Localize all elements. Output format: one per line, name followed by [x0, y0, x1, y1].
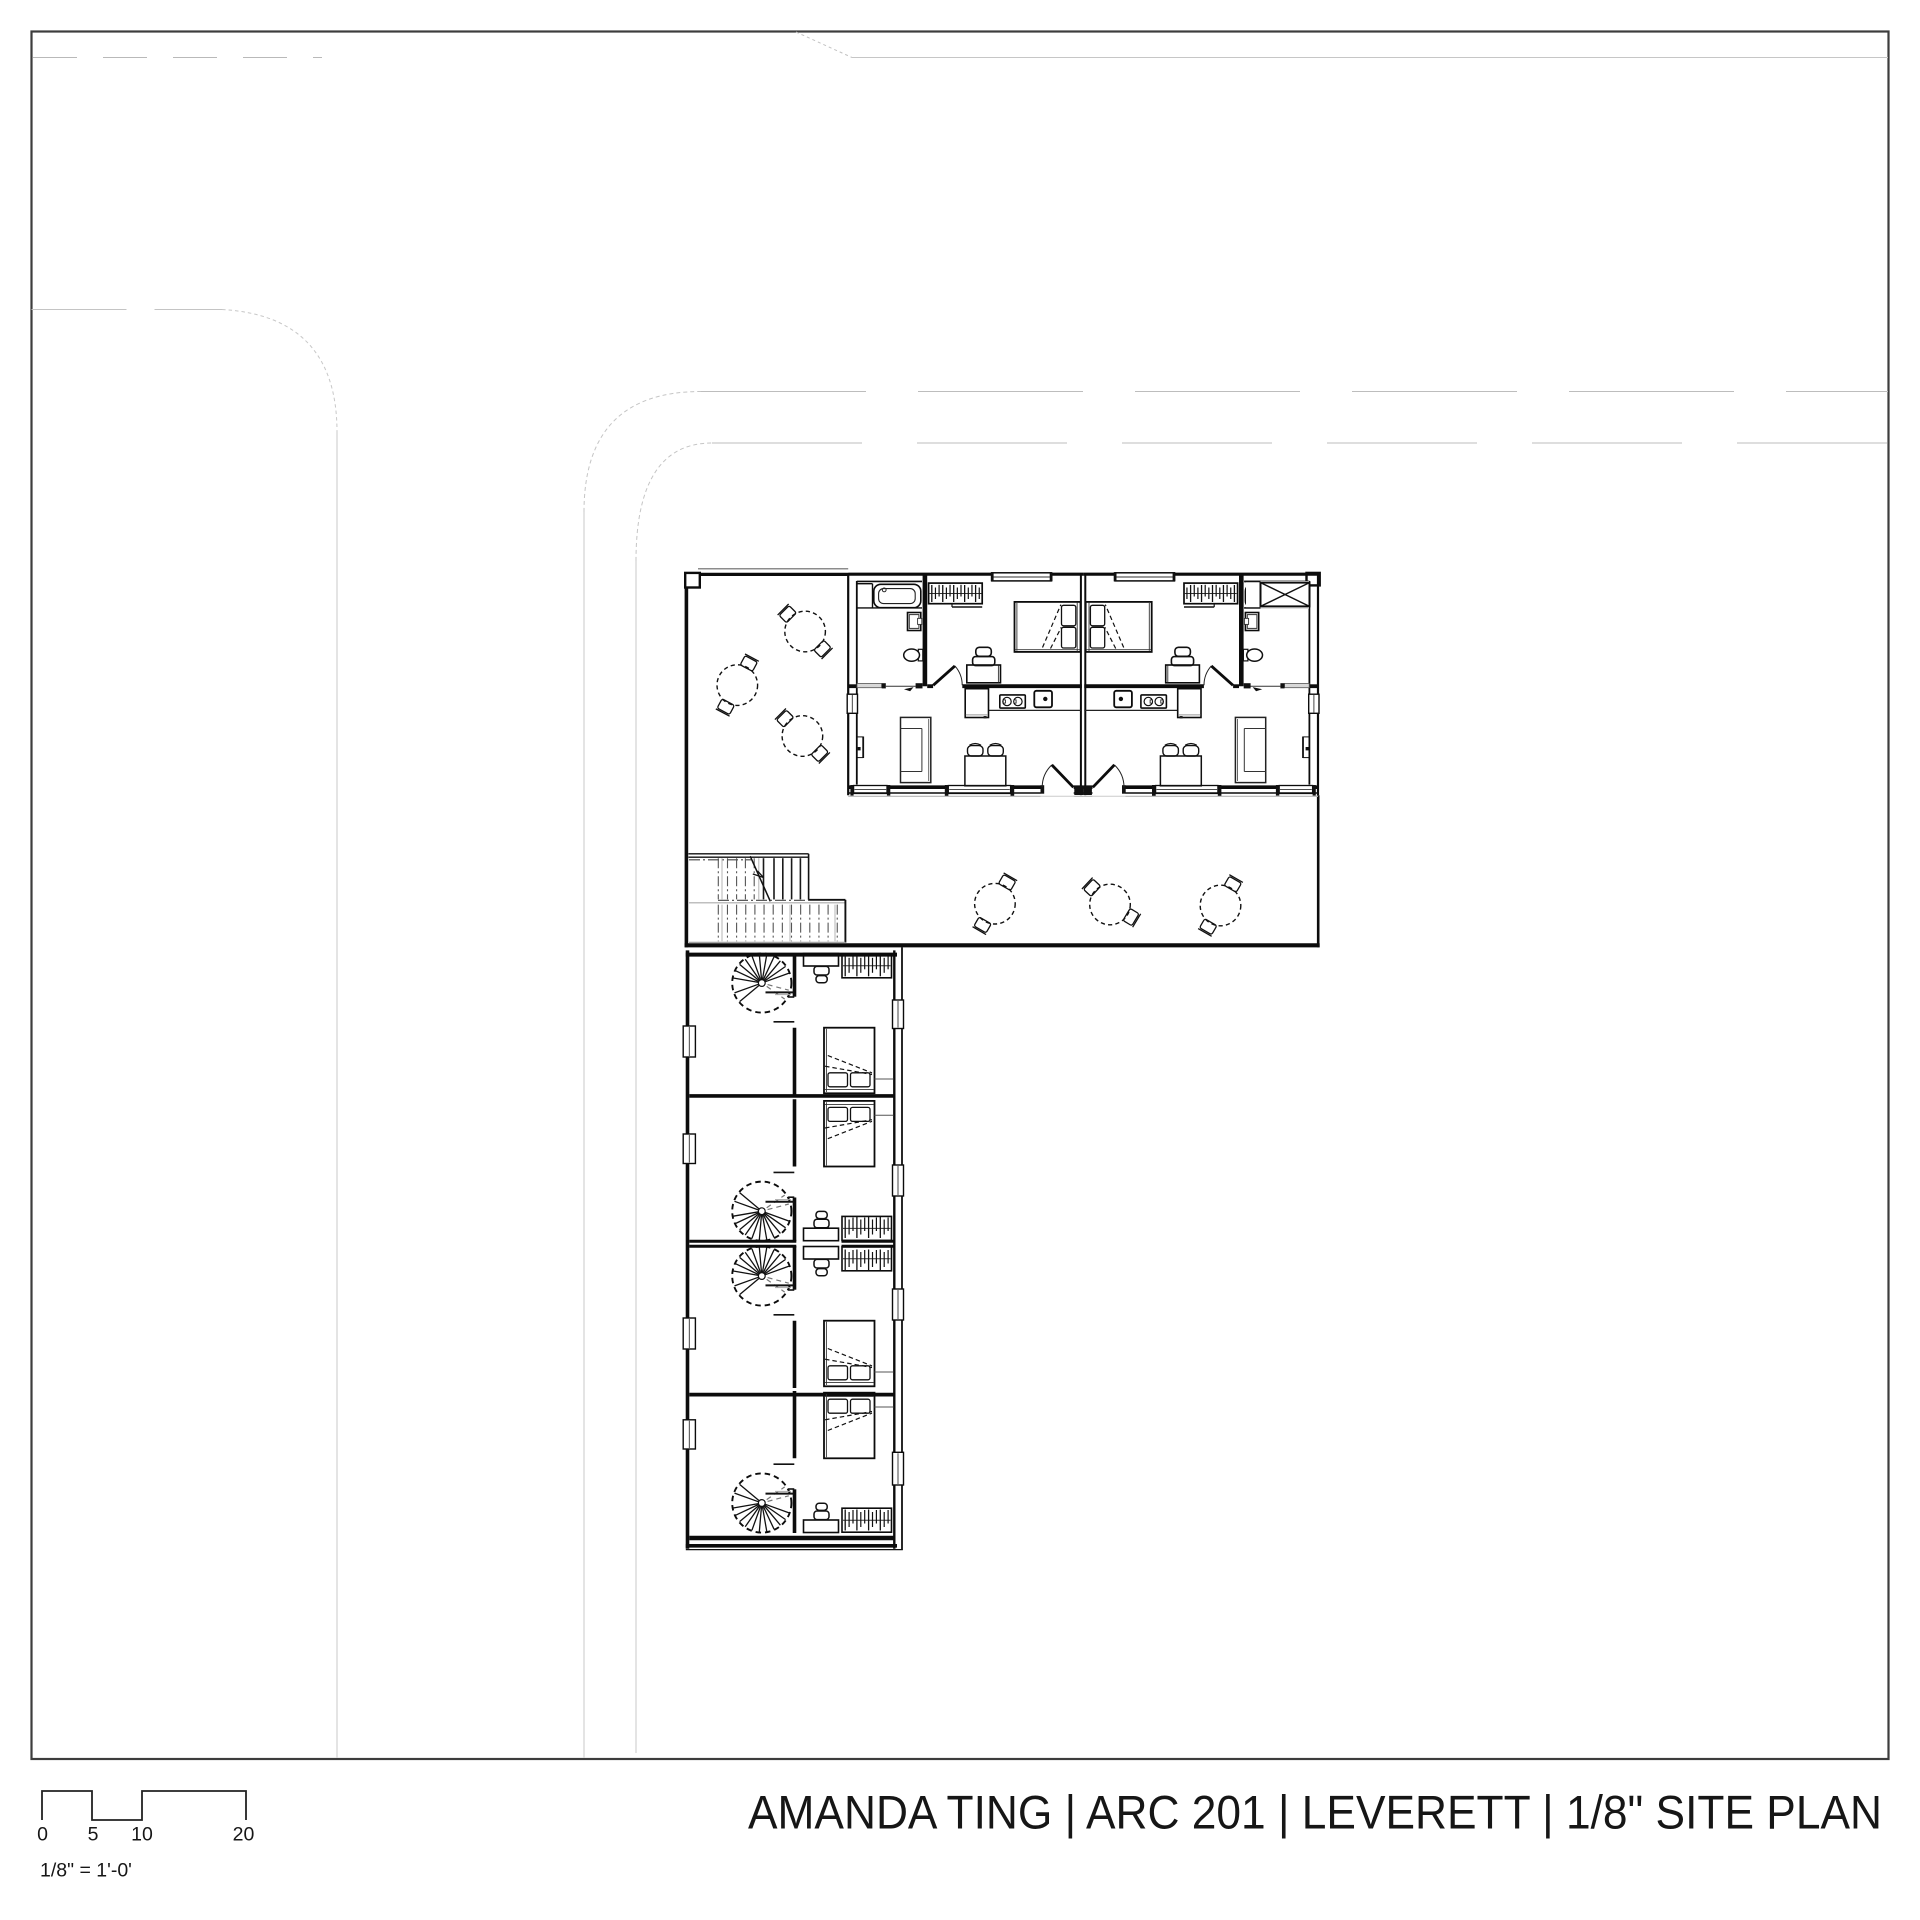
svg-text:1/8" = 1'-0': 1/8" = 1'-0': [40, 1860, 132, 1882]
svg-text:AMANDA TING | ARC 201 | LEVERE: AMANDA TING | ARC 201 | LEVERETT | 1/8" …: [748, 1787, 1882, 1840]
svg-text:20: 20: [233, 1824, 255, 1846]
svg-text:0: 0: [37, 1824, 48, 1846]
svg-text:5: 5: [88, 1824, 99, 1846]
svg-text:10: 10: [131, 1824, 153, 1846]
